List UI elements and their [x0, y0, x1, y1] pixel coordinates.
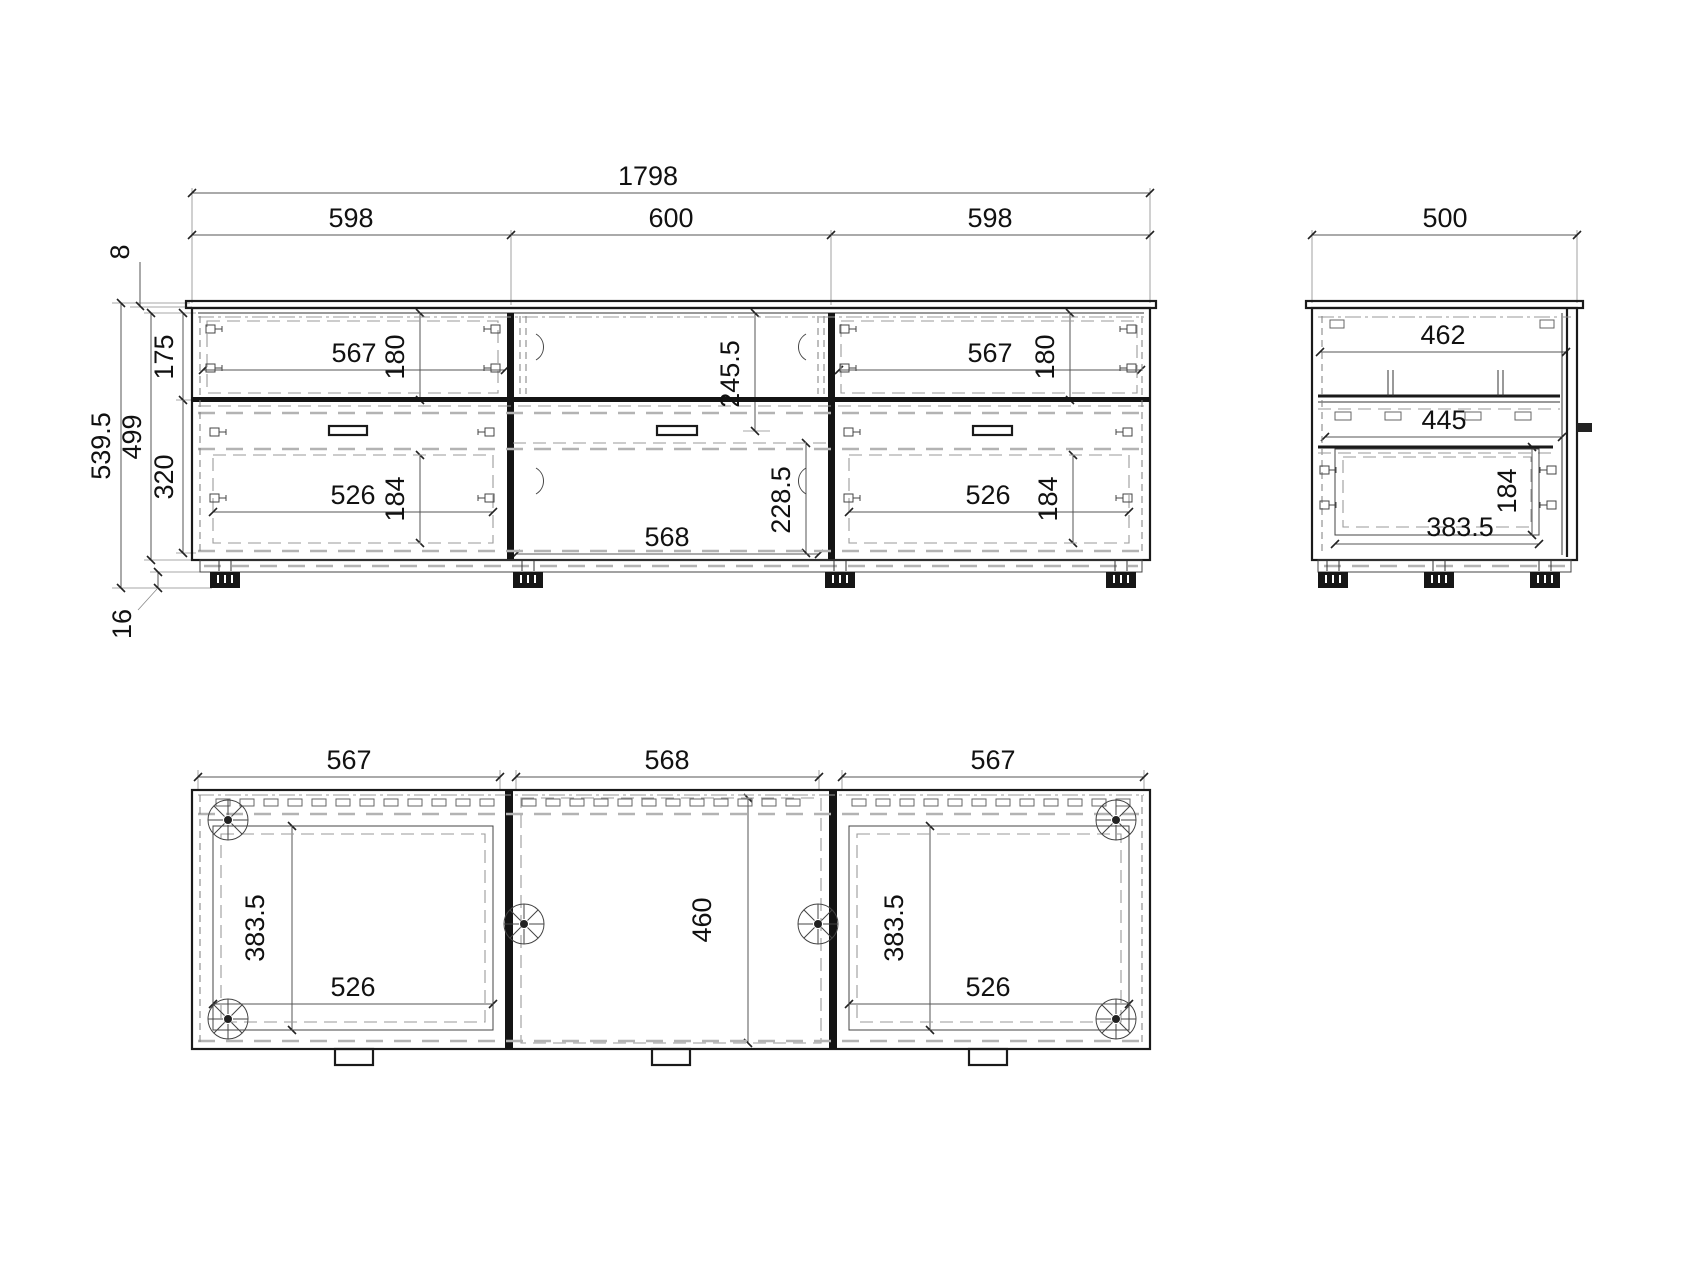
dim-front-right-drawer-width: 567	[967, 338, 1012, 368]
side-dimension-lines	[1312, 235, 1577, 544]
dim-front-left-drawer-height: 180	[380, 334, 410, 379]
plan-divider-right	[829, 790, 837, 1049]
side-extension-lines	[1312, 230, 1577, 303]
dim-side-top-clear-depth: 462	[1420, 320, 1465, 350]
dim-front-section-center: 600	[648, 203, 693, 233]
front-center-handle	[657, 426, 697, 435]
dim-front-flap-width: 568	[644, 522, 689, 552]
dim-front-section-left: 598	[328, 203, 373, 233]
dim-front-carcass-height: 499	[117, 414, 147, 459]
dim-plan-section-right: 567	[970, 745, 1015, 775]
technical-drawing-page: 1798 598 600 598 8 539.5 499 175 320 16 …	[0, 0, 1683, 1262]
dim-front-left-box-height: 184	[380, 476, 410, 521]
plan-tab-2	[652, 1049, 690, 1065]
plan-dimension-lines	[198, 777, 1144, 1043]
dim-front-right-box-width: 526	[965, 480, 1010, 510]
side-door-knob	[1577, 423, 1592, 432]
dim-side-depth: 500	[1422, 203, 1467, 233]
plan-hinge-left-top	[208, 800, 248, 840]
side-foot-3	[1530, 572, 1560, 588]
front-drawer-gap	[192, 397, 1150, 402]
dim-front-section-right: 598	[967, 203, 1012, 233]
side-foot-1	[1318, 572, 1348, 588]
front-foot-2	[513, 572, 543, 588]
front-dimension-lines	[121, 193, 1150, 588]
plan-hardware-row	[216, 799, 1130, 806]
plan-hinge-right-bottom	[1096, 999, 1136, 1039]
dim-front-foot-height: 16	[107, 609, 137, 639]
front-left-handle	[329, 426, 367, 435]
dim-front-left-drawer-width: 567	[331, 338, 376, 368]
front-foot-1	[210, 572, 240, 588]
dim-side-opening-depth: 383.5	[1426, 512, 1494, 542]
dim-front-right-drawer-height: 180	[1030, 334, 1060, 379]
dim-front-center-opening-height: 245.5	[715, 340, 745, 408]
front-divider-right	[828, 313, 835, 560]
dim-front-upper-height: 175	[149, 334, 179, 379]
front-divider-left	[507, 313, 514, 560]
plan-view: 567 568 567 383.5 526 460 383.5 526	[192, 561, 1551, 1065]
plan-tab-1	[335, 1049, 373, 1065]
dim-plan-left-opening-width: 526	[330, 972, 375, 1002]
front-foot-3	[825, 572, 855, 588]
front-right-handle	[973, 426, 1012, 435]
plan-carcass	[192, 790, 1150, 1049]
dim-side-opening-height: 184	[1492, 468, 1522, 513]
dim-plan-section-left: 567	[326, 745, 371, 775]
technical-drawing-canvas: 1798 598 600 598 8 539.5 499 175 320 16 …	[0, 0, 1683, 1262]
dim-front-right-box-height: 184	[1033, 476, 1063, 521]
dim-front-flap-height: 228.5	[766, 466, 796, 534]
side-view: 500 462 445 383.5 184	[1306, 203, 1592, 588]
plan-hinge-left-bottom	[208, 999, 248, 1039]
plan-hinge-right-top	[1096, 800, 1136, 840]
front-foot-4	[1106, 572, 1136, 588]
side-feet	[1318, 572, 1560, 588]
dim-plan-section-center: 568	[644, 745, 689, 775]
dim-front-top-overhang: 8	[105, 244, 135, 259]
plan-hidden-details	[198, 795, 1144, 1045]
front-feet	[210, 572, 1136, 588]
dim-front-left-box-width: 526	[330, 480, 375, 510]
dim-plan-right-opening-width: 526	[965, 972, 1010, 1002]
plan-tab-3	[969, 1049, 1007, 1065]
dim-front-total-height: 539.5	[86, 412, 116, 480]
side-foot-2	[1424, 572, 1454, 588]
dim-side-shelf-depth: 445	[1421, 405, 1466, 435]
plan-stay-right	[798, 904, 838, 944]
dim-plan-center-depth: 460	[687, 897, 717, 942]
plan-divider-left	[505, 790, 513, 1049]
dim-front-lower-height: 320	[149, 454, 179, 499]
front-view: 1798 598 600 598 8 539.5 499 175 320 16 …	[86, 161, 1156, 639]
dim-front-overall-width: 1798	[618, 161, 678, 191]
dim-plan-left-opening-depth: 383.5	[240, 894, 270, 962]
plan-stay-left	[504, 904, 544, 944]
dim-plan-right-opening-depth: 383.5	[879, 894, 909, 962]
plan-body	[192, 790, 1150, 1065]
